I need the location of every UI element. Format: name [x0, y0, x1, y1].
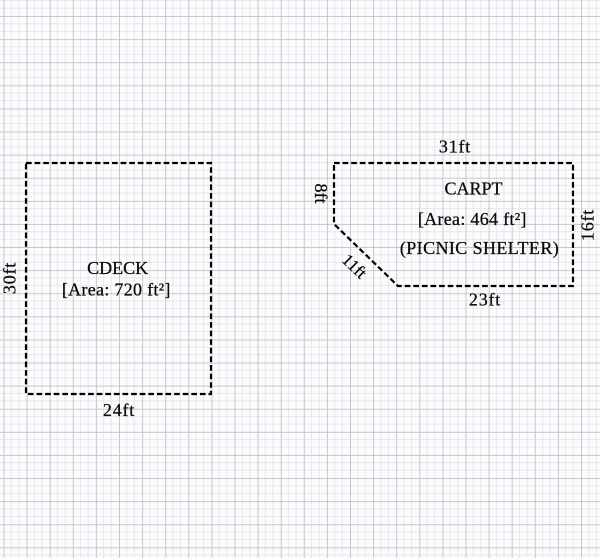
svg-text:[Area: 720 ft²]: [Area: 720 ft²] [62, 280, 171, 300]
svg-text:CDECK: CDECK [87, 258, 148, 278]
svg-text:30ft: 30ft [0, 262, 20, 294]
svg-text:24ft: 24ft [103, 400, 135, 420]
svg-text:[Area: 464 ft²]: [Area: 464 ft²] [418, 209, 527, 229]
svg-text:CARPT: CARPT [444, 179, 502, 199]
svg-text:31ft: 31ft [439, 137, 471, 157]
svg-text:8ft: 8ft [311, 184, 331, 204]
svg-text:16ft: 16ft [578, 209, 598, 241]
svg-text:(PICNIC SHELTER): (PICNIC SHELTER) [400, 238, 559, 259]
svg-text:23ft: 23ft [469, 290, 501, 310]
